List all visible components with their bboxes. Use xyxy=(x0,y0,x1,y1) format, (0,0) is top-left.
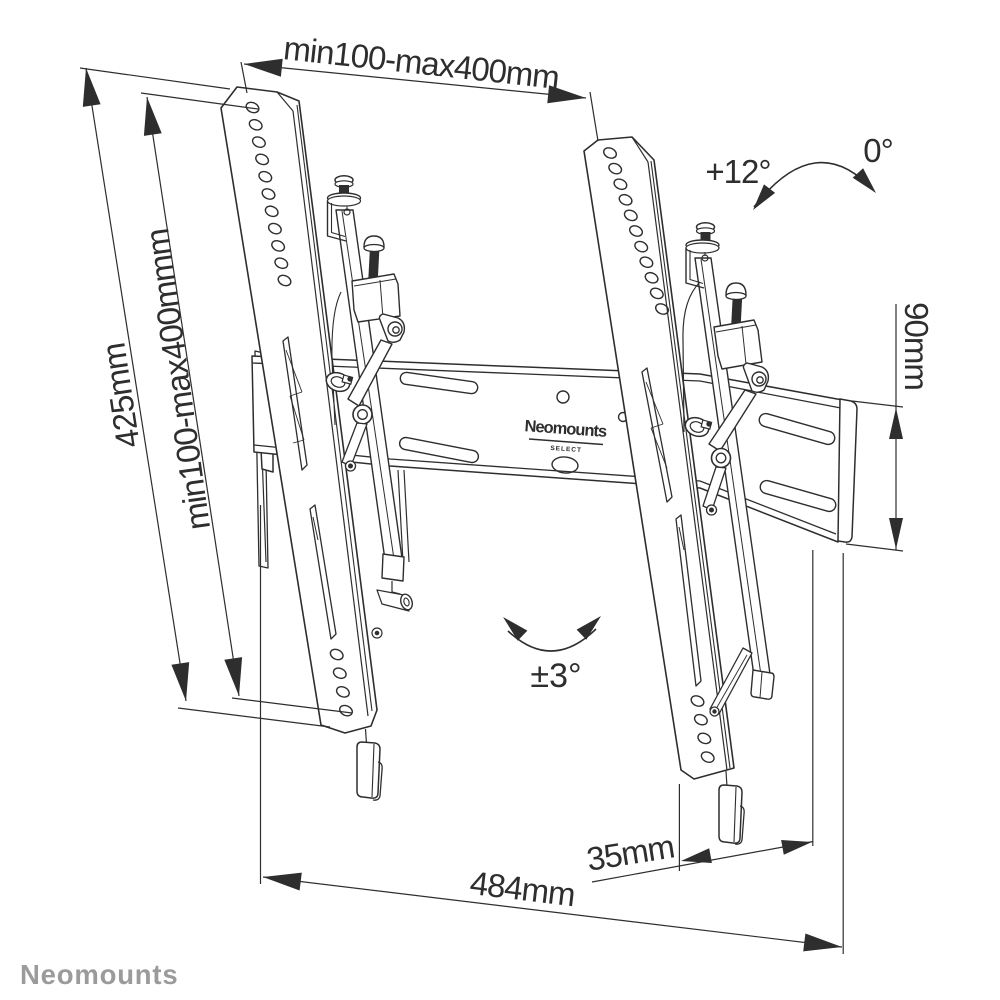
svg-text:35mm: 35mm xyxy=(584,828,676,878)
svg-text:min100-max400mm: min100-max400mm xyxy=(282,29,561,96)
svg-text:90mm: 90mm xyxy=(898,302,935,390)
svg-text:Neomounts: Neomounts xyxy=(20,959,178,990)
svg-text:±3°: ±3° xyxy=(530,657,581,695)
svg-text:484mm: 484mm xyxy=(468,864,577,913)
svg-text:min100-max400mmm: min100-max400mmm xyxy=(138,227,217,532)
svg-text:+12°: +12° xyxy=(705,153,770,190)
svg-text:425mm: 425mm xyxy=(94,341,146,450)
svg-text:0°: 0° xyxy=(863,132,893,169)
